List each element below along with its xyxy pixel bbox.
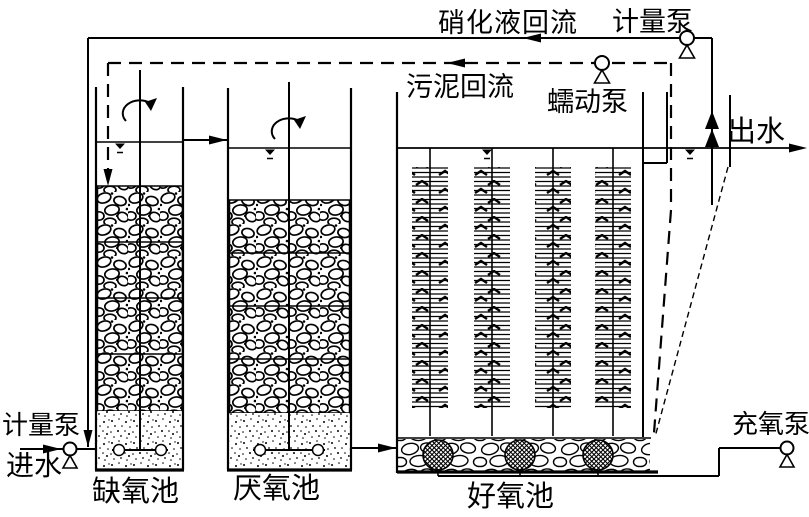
water-level-icon	[482, 150, 492, 159]
oxygen-pump-symbol	[780, 442, 794, 468]
metering-pump-symbol	[63, 443, 77, 469]
aerator-diffuser	[583, 440, 613, 470]
water-level-icon	[115, 144, 125, 153]
sludge-down-arrow	[104, 169, 113, 186]
sludge-left-arrow	[447, 59, 465, 68]
effluent-arrow	[789, 144, 807, 153]
aerobic-tank-label: 好氧池	[467, 480, 554, 513]
diagram-svg: 硝化液回流 计量泵 污泥回流 蠕动泵 出水 计量泵 进水 缺氧池 厌氧池 好氧池…	[0, 0, 809, 517]
biofilm-carriers	[412, 148, 631, 436]
riser-up-arrow	[705, 111, 719, 129]
nitrified-return-label: 硝化液回流	[438, 8, 578, 38]
metering-pump-inlet-label: 计量泵	[2, 411, 80, 440]
oxygen-pump-label: 充氧泵	[732, 410, 809, 439]
water-level-icon	[265, 150, 275, 159]
aerator-diffuser	[423, 440, 453, 470]
sludge-return-label: 污泥回流	[406, 72, 514, 102]
metering-pump-top-label: 计量泵	[612, 7, 693, 37]
transfer-arrow-1	[209, 136, 227, 145]
influent-label: 进水	[6, 450, 62, 482]
peristaltic-pump-label: 蠕动泵	[547, 87, 628, 117]
peristaltic-pump-symbol	[595, 56, 610, 83]
clarifier-inclined-wall	[655, 167, 728, 437]
anaerobic-tank-label: 厌氧池	[233, 472, 320, 505]
sludge-return-line	[108, 63, 671, 433]
effluent-label: 出水	[727, 115, 785, 148]
anaerobic-tank	[227, 82, 352, 470]
process-flow-diagram: 硝化液回流 计量泵 污泥回流 蠕动泵 出水 计量泵 进水 缺氧池 厌氧池 好氧池…	[0, 0, 809, 517]
anoxic-tank-label: 缺氧池	[92, 475, 179, 508]
water-level-icon	[685, 150, 695, 159]
transfer-arrow-2	[378, 444, 396, 453]
aerator-diffuser	[505, 440, 535, 470]
riser-up-arrow	[705, 129, 719, 147]
return-down-arrow	[84, 430, 93, 447]
